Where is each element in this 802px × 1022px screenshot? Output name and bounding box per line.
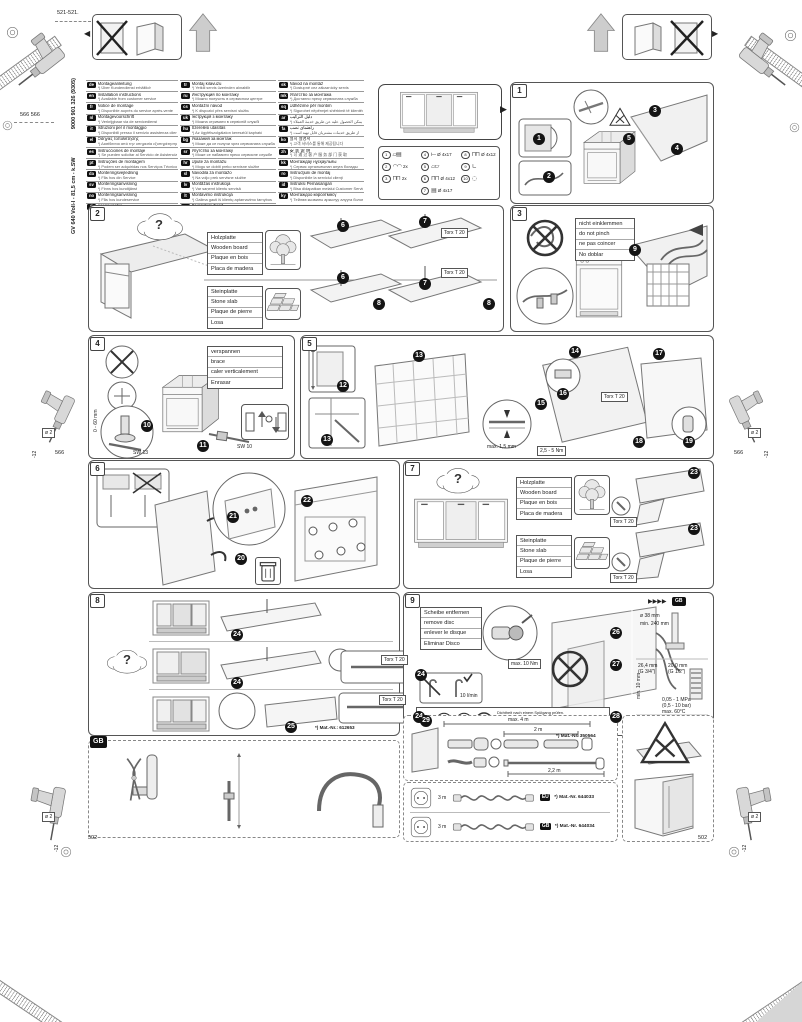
no-cut-icon xyxy=(550,649,590,689)
wrong-panel-art xyxy=(93,15,181,59)
part-icon: ▤ xyxy=(431,188,436,194)
language-code-badge: sk xyxy=(279,82,288,88)
power-cord-icon xyxy=(452,818,536,836)
step-marker: 29 xyxy=(420,715,432,727)
language-entry: lt Montavimo instrukcija*) Galima gauti … xyxy=(180,192,276,203)
cord-mat-nr: *) Mat.-Nr. 644034 xyxy=(555,824,595,830)
part-item: 5 ▱▱ xyxy=(421,161,462,173)
step-marker: 17 xyxy=(653,348,665,360)
torx-label: Torx T 20 xyxy=(610,573,637,583)
language-note: *) 可 通 过 客 户 服 务 部 门 获 取 xyxy=(290,153,348,157)
registration-mark xyxy=(60,846,72,858)
step-marker: 22 xyxy=(301,495,313,507)
arrow-up-icon xyxy=(586,10,616,56)
drill-diameter-label: ø 2 xyxy=(42,812,55,822)
prohibited-triangle-icon xyxy=(639,720,691,766)
material-label: Plaque de pierre xyxy=(208,308,262,318)
hose-length-2m: 2 m xyxy=(534,727,542,733)
power-cord-icon xyxy=(452,789,536,807)
part-item: 8 ⊓⊓ Ø 4x12 xyxy=(461,149,496,161)
leveling-pictogram-box xyxy=(241,404,289,440)
dim-mid-left: 566 xyxy=(55,450,64,457)
pinch-warning-labels: nicht einklemmendo not pinchne pas coinc… xyxy=(575,218,635,261)
material-label: Placa de madera xyxy=(517,509,571,518)
language-entry: ro Instrucţiuni de montaj*) Disponibile … xyxy=(278,169,364,180)
language-code-badge: cs xyxy=(181,104,190,110)
panel-6: 6 21 20 22 xyxy=(88,460,400,589)
instruction-label: Scheibe entfernen xyxy=(421,608,481,618)
material-label: Placa de madera xyxy=(208,264,262,273)
part-label: Ø 4x17 xyxy=(438,189,453,194)
step-marker: 4 xyxy=(671,143,683,155)
language-entry: hr Upute za montažu*) Mogu se dobiti pre… xyxy=(180,158,276,169)
warning-label: do not pinch xyxy=(576,229,634,239)
language-note: *) Über Kundendienst erhältlich xyxy=(98,86,152,90)
drill-diameter-label: ø 2 xyxy=(748,428,761,438)
step-marker: 5 xyxy=(623,133,635,145)
language-note: *) Може се набавити преко сервисне служб… xyxy=(192,153,273,157)
panel-number: 7 xyxy=(405,462,420,476)
connection-size-b2: (G 1/2") xyxy=(668,669,685,675)
panel-1: 1 1 2 3 4 5 xyxy=(510,82,714,204)
language-entry: ky Монтаждоо көрсөтмөсү*) Тейлөө кызматы… xyxy=(278,192,364,203)
material-label: Holzplatte xyxy=(208,233,262,243)
language-entry: ar دليل التركيب*) يمكن الحصول عليه عن طر… xyxy=(278,114,364,125)
leader-line xyxy=(55,21,91,22)
step-marker: 6 xyxy=(337,272,349,284)
language-note: *) Se pueden solicitar al Servicio de As… xyxy=(98,153,178,157)
step-marker: 18 xyxy=(633,436,645,448)
part-item: 10 ◌ xyxy=(461,173,496,185)
panel-8: 8 ? 24 24 Torx T 20 24 Torx T 20 24 25 *… xyxy=(88,592,400,736)
language-entry: de Montageanleitung*) Über Kundendienst … xyxy=(86,80,178,91)
step-marker: 1 xyxy=(533,133,545,145)
gb-ref-badge: GB xyxy=(672,597,686,606)
power-cord-panel: 3 m EU *) Mat.-Nr. 644033 3 m GB *) Mat.… xyxy=(403,782,618,842)
language-code-badge: pt xyxy=(87,160,96,166)
panel-3: 3 nicht einklemmendo not pinchne pas coi… xyxy=(510,205,714,332)
language-code-badge: hr xyxy=(181,160,190,166)
drain-hose-diameter: ø 38 mm xyxy=(640,613,660,619)
disposal-box xyxy=(255,557,281,585)
language-code-badge: nl xyxy=(87,115,96,121)
part-number: 7 xyxy=(421,187,430,196)
language-entry: id Instruksi Pemasangan*) Bisa didapatka… xyxy=(278,181,364,192)
language-note: *) Bisa didapatkan melalui Customer Serv… xyxy=(290,187,364,191)
part-number: 2 xyxy=(382,163,391,172)
language-note: *) Сервис орталығынан алуға болады xyxy=(290,165,358,169)
language-code-badge: lt xyxy=(181,193,190,199)
part-label: Ø 4x17 xyxy=(437,153,452,158)
step-marker: 24 xyxy=(415,669,427,681)
drill-icon xyxy=(17,776,77,846)
parts-column: 4 ⟝ Ø 4x17 5 ▱▱ 6 ⊓⊓ Ø 4x12 7 ▤ Ø 4x17 xyxy=(421,149,462,197)
language-note: *) Yetkili servis üzerinden alınabilir xyxy=(192,86,251,90)
language-note: *) Fås hos kundeservice xyxy=(98,198,140,202)
step-marker: 14 xyxy=(569,346,581,358)
hose-length-22m: 2,2 m xyxy=(548,768,561,774)
leveling-pictogram xyxy=(242,405,288,439)
drain-hose-kit-panel: max. 4 m 2 m 2,2 m *) Mat.-Nr. 350564 xyxy=(403,715,618,781)
wood-option-labels: HolzplatteWooden boardPlaque en boisPlac… xyxy=(207,232,263,275)
language-note: *) Dostupné cez zákaznícky servis xyxy=(290,86,349,90)
material-label: Plaque en bois xyxy=(517,499,571,509)
registration-mark xyxy=(789,122,800,133)
gb-section-badge: GB xyxy=(90,736,107,748)
no-pinch-icon xyxy=(525,218,565,258)
part-number: 3 xyxy=(382,175,391,184)
panel-number: 9 xyxy=(405,594,420,608)
language-note: *) Можна отримати в сервісній службі xyxy=(192,120,260,124)
step-marker: 3 xyxy=(649,105,661,117)
drill-icon xyxy=(20,379,86,451)
language-note: *) Az ügyfélszolgálaton keresztül kaphat… xyxy=(192,131,263,135)
model-code: GV 640 Voll-I - 81,5 cm - k.SW xyxy=(72,157,78,234)
language-code-badge: ky xyxy=(279,193,288,199)
language-note: *) Disponibile la serviciul clienţi xyxy=(290,176,343,180)
dim-left-pair: 566 566 xyxy=(20,112,40,119)
language-entry: tr Montaj kılavuzu*) Yetkili servis üzer… xyxy=(180,80,276,91)
language-list: de Montageanleitung*) Über Kundendienst … xyxy=(86,80,364,202)
hose-kit-art xyxy=(404,716,617,780)
language-entry: lv Montāžas instrukcija*) Var saņemt kli… xyxy=(180,181,276,192)
torx-label: Torx T 20 xyxy=(381,655,408,665)
step-marker: 24 xyxy=(231,677,243,689)
hose-mat-nr: *) Mat.-Nr. 350564 xyxy=(556,734,596,740)
language-entry: no Monteringsanvisning*) Fås hos kundese… xyxy=(86,192,178,203)
language-code-badge: ko xyxy=(279,137,288,143)
document-id-vertical: GV 640 Voll-I - 81,5 cm - k.SW 9000 901 … xyxy=(72,78,78,234)
language-code-badge: de xyxy=(87,82,96,88)
panel-2: 2 ? HolzplatteWooden boardPlaque en bois… xyxy=(88,205,504,332)
step-marker: 26 xyxy=(610,627,622,639)
stone-option-labels: SteinplatteStone slabPlaque de pierreLos… xyxy=(207,286,263,329)
warning-label: No doblar xyxy=(576,250,634,259)
wrong-panel-box xyxy=(622,14,712,60)
step-marker: 25 xyxy=(285,721,297,733)
material-label: Losa xyxy=(208,318,262,327)
step-marker: 8 xyxy=(483,298,495,310)
dim-bottom-left: 502 xyxy=(88,835,97,842)
language-note: *) Mogu se dobiti preko servisne službe xyxy=(192,165,260,169)
cord-mat-nr: *) Mat.-Nr. 644033 xyxy=(554,795,594,801)
gap-limit-label: max. 1,5 mm xyxy=(487,444,516,450)
language-note: *) Galima gauti iš klientų aptarnavimo t… xyxy=(192,198,272,202)
language-code-badge: ar xyxy=(279,115,288,121)
language-code-badge: tr xyxy=(181,82,190,88)
material-label: Plaque en bois xyxy=(208,254,262,264)
panel-number: 1 xyxy=(512,84,527,98)
instruction-sheet-page: 521-521. 566 566 ø 2 -12 566 ø 2 -12 566… xyxy=(0,0,802,1022)
material-label: Steinplatte xyxy=(517,536,571,546)
language-column-1: de Montageanleitung*) Über Kundendienst … xyxy=(86,80,178,214)
language-entry: sk Návod na montáž*) Dostupné cez zákazn… xyxy=(278,80,364,91)
step-marker: 27 xyxy=(610,659,622,671)
part-icon: ∟ xyxy=(472,164,476,170)
language-entry: mk Упатство за монтажа*) Достапно преку … xyxy=(278,91,364,102)
language-entry: sr Упутство за монтажу*) Може се набавит… xyxy=(180,147,276,158)
stone-option-labels: SteinplatteStone slabPlaque de pierreLos… xyxy=(516,535,572,578)
part-label: 2x xyxy=(403,165,408,170)
panel-number: 6 xyxy=(90,462,105,476)
brace-labels: verspannenbracecaler verticalementEnrasa… xyxy=(207,346,283,389)
language-note: *) Fås hos din Service xyxy=(98,176,139,180)
language-entry: cs Montážní návod*) K dispozici přes ser… xyxy=(180,102,276,113)
wood-option-labels: HolzplatteWooden boardPlaque en boisPlac… xyxy=(516,477,572,520)
language-code-badge: fr xyxy=(87,104,96,110)
language-entry: fr Notice de montage*) Disponible auprès… xyxy=(86,102,178,113)
part-number: 6 xyxy=(421,175,430,184)
part-number: 4 xyxy=(421,151,430,160)
hose-max-length: max. 4 m xyxy=(508,717,529,723)
instruction-label: remove disc xyxy=(421,618,481,628)
torx-label: Torx T 20 xyxy=(610,517,637,527)
part-icon: ▱▱ xyxy=(431,164,438,170)
registration-mark xyxy=(728,846,740,858)
registration-mark xyxy=(6,26,19,39)
parts-column: 1 ▱▤ 2 ◠◠ 2x 3 ⊓⊓ 2x xyxy=(382,149,421,197)
language-note: *) Finns hos kundtjänst xyxy=(98,187,138,191)
language-code-badge: lv xyxy=(181,182,190,188)
language-code-badge: hu xyxy=(181,126,190,132)
material-label: Wooden board xyxy=(208,243,262,253)
step-marker: 8 xyxy=(373,298,385,310)
pointer-left-icon: ◀ xyxy=(84,29,90,39)
panel-number: 3 xyxy=(512,207,527,221)
language-entry: zh 安 装 说 明*) 可 通 过 客 户 服 务 部 门 获 取 xyxy=(278,147,364,158)
part-icon: ◌ xyxy=(472,176,476,182)
material-label: Stone slab xyxy=(517,546,571,556)
language-note: *) Διατίθενται από την υπηρεσία εξυπηρέτ… xyxy=(98,142,178,146)
step-marker: 9 xyxy=(629,244,641,256)
part-icon: ⊓⊓ xyxy=(431,176,438,182)
language-entry: ru Инструкция по монтажу*) Можно получит… xyxy=(180,91,276,102)
language-entry: el Οδηγίες τοποθέτησης*) Διατίθενται από… xyxy=(86,136,178,147)
page-fold-corner xyxy=(756,982,802,1022)
arrow-up-icon xyxy=(188,10,218,56)
panel-number: 2 xyxy=(90,207,105,221)
registration-mark xyxy=(2,120,13,131)
warning-label: nicht einklemmen xyxy=(576,219,634,229)
language-note: *) Available from customer service xyxy=(98,97,157,101)
brace-label: Enrasar xyxy=(208,378,282,387)
parts-column: 8 ⊓⊓ Ø 4x12 9 ∟ 10 ◌ xyxy=(461,149,496,197)
torx-label: Torx T 20 xyxy=(441,228,468,238)
material-label: Losa xyxy=(517,567,571,576)
part-icon: ⟝ xyxy=(431,152,435,158)
min-gap-label: min. 10 mm xyxy=(636,673,642,699)
part-item: 1 ▱▤ xyxy=(382,149,421,161)
panel-7: 7 ? HolzplatteWooden boardPlaque en bois… xyxy=(403,460,714,589)
power-cord-rows: 3 m EU *) Mat.-Nr. 644033 3 m GB *) Mat.… xyxy=(404,783,617,841)
instruction-label: Eliminar Disco xyxy=(421,639,481,648)
language-note: *) Можно получить в сервисном центре xyxy=(192,97,263,101)
max-temp-label: max. 60°C xyxy=(662,709,685,715)
language-column-2: tr Montaj kılavuzu*) Yetkili servis üzer… xyxy=(180,80,276,214)
country-badge: GB xyxy=(540,823,551,830)
part-item: 4 ⟝ Ø 4x17 xyxy=(421,149,462,161)
part-number: 10 xyxy=(461,175,470,184)
height-range-label: 0 - 60 mm xyxy=(93,409,99,432)
step-marker: 21 xyxy=(227,511,239,523)
step-marker: 11 xyxy=(197,440,209,452)
panel-6-art xyxy=(89,461,399,588)
language-note: *) Тейлөө кызматы аркылуу алууга болот xyxy=(290,198,364,202)
cord-length: 3 m xyxy=(438,824,446,830)
step-marker: 16 xyxy=(557,388,569,400)
language-note: *) Podem ser adquiridas nos Serviços Téc… xyxy=(98,165,178,169)
language-code-badge: en xyxy=(87,93,96,99)
pointer-right-icon: ▶ xyxy=(712,29,718,39)
step-marker: 23 xyxy=(688,467,700,479)
material-label: Steinplatte xyxy=(208,287,262,297)
part-number: 1 xyxy=(382,151,391,160)
wrong-panel-box xyxy=(92,14,182,60)
leader-line xyxy=(14,122,54,123)
language-entry: kk Монтаждау нұсқаулығы*) Сервис орталығ… xyxy=(278,158,364,169)
language-code-badge: sr xyxy=(181,149,190,155)
panel-number: 4 xyxy=(90,337,105,351)
remove-disc-labels: Scheibe entfernenremove discenlever le d… xyxy=(420,607,482,650)
stones-icon xyxy=(266,291,300,315)
power-cord-row: 3 m GB *) Mat.-Nr. 644034 xyxy=(404,812,617,841)
drill-depth-label: -12 xyxy=(742,845,748,852)
language-code-badge: es xyxy=(87,149,96,155)
drill-icon xyxy=(725,776,785,846)
dishwasher-front-art xyxy=(573,254,625,320)
torx-label: Torx T 20 xyxy=(441,268,468,278)
step-marker: 28 xyxy=(610,711,622,723)
step-marker: 7 xyxy=(419,216,431,228)
pliers-icon xyxy=(117,753,151,805)
step-marker: 10 xyxy=(141,420,153,432)
part-item: 3 ⊓⊓ 2x xyxy=(382,173,421,185)
trash-icon xyxy=(256,558,280,584)
language-code-badge: id xyxy=(279,182,288,188)
language-entry: uk Інструкція з монтажу*) Можна отримати… xyxy=(180,114,276,125)
brace-label: verspannen xyxy=(208,347,282,357)
parts-list-box: 1 ▱▤ 2 ◠◠ 2x 3 ⊓⊓ 2x 4 ⟝ Ø 4x17 xyxy=(378,146,500,200)
part-label: 2x xyxy=(402,177,407,182)
brace-label: brace xyxy=(208,357,282,367)
wrong-panel-art xyxy=(623,15,711,59)
language-code-badge: mk xyxy=(279,93,288,99)
no-board-warning-panel xyxy=(622,715,714,842)
question-mark: ? xyxy=(123,653,131,666)
panel-5-art xyxy=(301,336,713,458)
language-code-badge: ru xyxy=(181,93,190,99)
corner-ruler xyxy=(0,976,62,1022)
language-entry: nl Montagevoorschrift*) Verkrijgbaar via… xyxy=(86,114,178,125)
language-note: *) 고객 서비스를 통해 제공됩니다 xyxy=(290,142,344,146)
material-label: Plaque de pierre xyxy=(517,557,571,567)
mat-nr-label: *) Mat.-Nr.: 612653 xyxy=(315,725,355,731)
language-note: *) Disponible auprès du service après-ve… xyxy=(98,109,173,113)
language-note: *) K dispozici přes servisní službu xyxy=(192,109,250,113)
step-marker: 2 xyxy=(543,171,555,183)
part-item: 2 ◠◠ 2x xyxy=(382,161,421,173)
part-icon: ⊓⊓ xyxy=(393,176,400,182)
language-entry: en Installation instructions*) Available… xyxy=(86,91,178,102)
dim-bottom-right: 502 xyxy=(698,835,707,842)
step-marker: 6 xyxy=(337,220,349,232)
question-mark: ? xyxy=(155,218,163,231)
language-code-badge: fa xyxy=(279,126,288,132)
drill-icon xyxy=(718,379,784,451)
panel-4: 4 verspannenbracecaler verticalementEnra… xyxy=(88,335,295,459)
part-icon: ▱▤ xyxy=(393,152,401,158)
panel-5: 5 12 13 13 14 15 16 17 18 19 max. 1,5 mm… xyxy=(300,335,714,459)
language-code-badge: el xyxy=(87,137,96,143)
drill-diameter-label: ø 2 xyxy=(748,812,761,822)
language-note: *) Na voljo prek servisne službe xyxy=(192,176,247,180)
language-entry: ko 설치 설명서*) 고객 서비스를 통해 제공됩니다 xyxy=(278,136,364,147)
part-label: Ø 4x12 xyxy=(441,177,456,182)
step-marker: 23 xyxy=(688,523,700,535)
dim-mid-right: 566 xyxy=(734,450,743,457)
wrench-size-label: SW 10 xyxy=(237,444,252,450)
language-code-badge: sq xyxy=(279,104,288,110)
language-note: *) Var saņemt klientu servisā xyxy=(192,187,241,191)
language-note: *) Може да се получи чрез сервизната слу… xyxy=(192,142,275,146)
torx-label: Torx T 20 xyxy=(601,392,628,402)
step-marker: 15 xyxy=(535,398,547,410)
doc-number: 9000 901 326 (9305) xyxy=(72,78,78,129)
part-label: Ø 4x12 xyxy=(481,153,496,158)
warning-label: ne pas coincer xyxy=(576,240,634,250)
language-code-badge: kk xyxy=(279,160,288,166)
language-note: *) Sigurohet nëpërmjet shërbimit të klie… xyxy=(290,109,364,113)
language-entry: sq Udhëzime për montim*) Sigurohet nëpër… xyxy=(278,102,364,113)
step-marker: 7 xyxy=(419,278,431,290)
step-marker: 13 xyxy=(413,350,425,362)
language-note: *) Verkrijgbaar via de servicedienst xyxy=(98,120,158,124)
brace-label: caler verticalement xyxy=(208,368,282,378)
language-entry: sv Monteringsanvisning*) Finns hos kundt… xyxy=(86,181,178,192)
question-mark: ? xyxy=(454,472,462,485)
material-label: Holzplatte xyxy=(517,478,571,488)
panel-number: 8 xyxy=(90,594,105,608)
dim-top-left: 521-521. xyxy=(57,10,79,17)
drill-depth-label: -12 xyxy=(764,451,770,458)
instruction-label: enlever le disque xyxy=(421,629,481,639)
part-number: 8 xyxy=(461,151,470,160)
panel-number: 5 xyxy=(302,337,317,351)
language-code-badge: uk xyxy=(181,115,190,121)
gb-drain-panel xyxy=(88,740,400,838)
flow-rate-label: 10 l/min xyxy=(460,693,478,699)
tree-icon xyxy=(266,231,300,269)
part-number: 9 xyxy=(461,163,470,172)
language-entry: sl Navodila za montažo*) Na voljo prek s… xyxy=(180,169,276,180)
language-note: *) از طریق خدمات مشتریان قابل تهیه است xyxy=(290,131,360,135)
language-code-badge: it xyxy=(87,126,96,132)
language-note: *) Disponibili presso il servizio assist… xyxy=(98,131,178,135)
socket-icon xyxy=(410,816,432,838)
language-entry: pt Instruções de montagem*) Podem ser ad… xyxy=(86,158,178,169)
wrench-size-label: SW 13 xyxy=(133,450,148,456)
material-label: Stone slab xyxy=(208,297,262,307)
drill-depth-label: -12 xyxy=(32,451,38,458)
language-code-badge: sv xyxy=(87,182,96,188)
part-icon: ⊓⊓ xyxy=(472,152,479,158)
language-code-badge: da xyxy=(87,171,96,177)
torque-label: 2,5 - 5 Nm xyxy=(537,446,566,456)
part-item: 9 ∟ xyxy=(461,161,496,173)
step-marker: 19 xyxy=(683,436,695,448)
step-marker: 24 xyxy=(231,629,243,641)
part-item: 6 ⊓⊓ Ø 4x12 xyxy=(421,173,462,185)
